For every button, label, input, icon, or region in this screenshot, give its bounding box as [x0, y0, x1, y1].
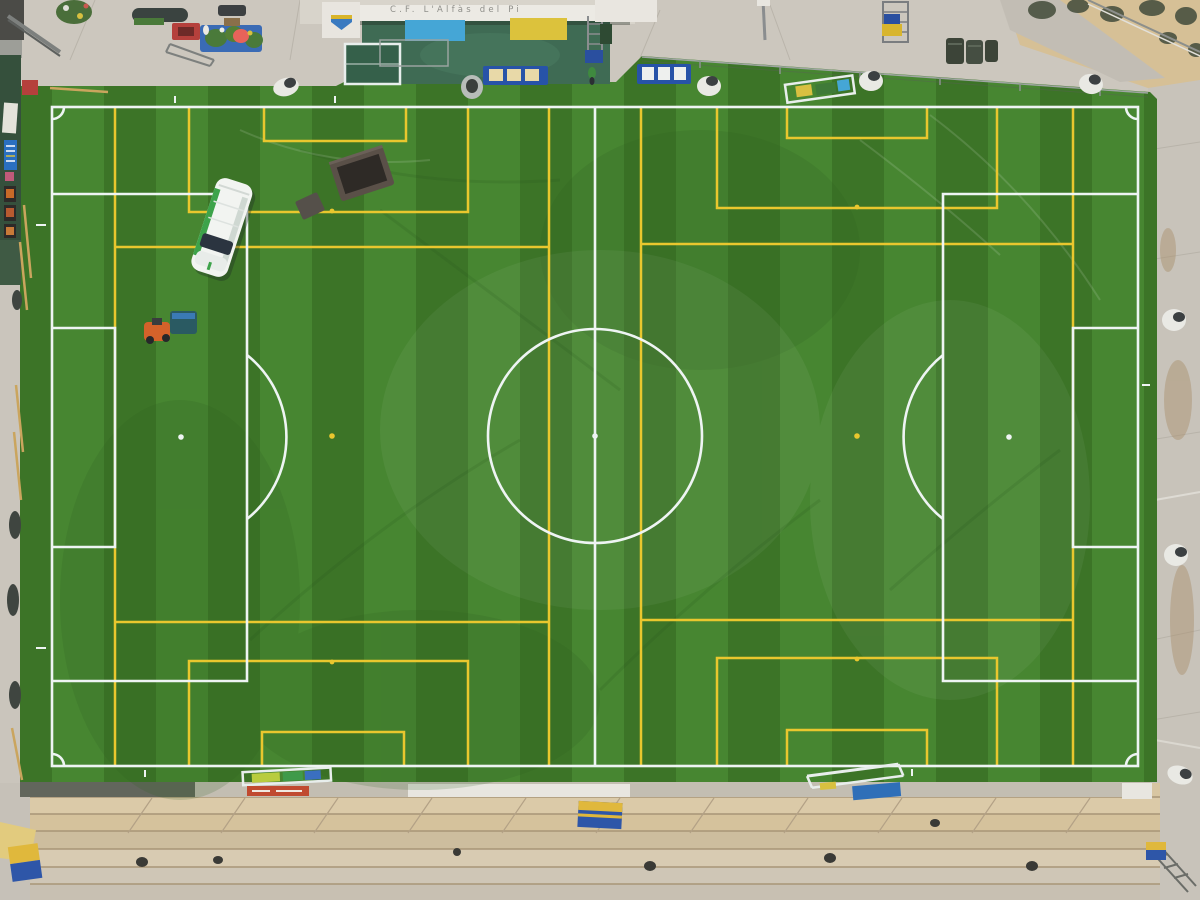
white-sign: [2, 103, 18, 134]
pipes: [218, 5, 246, 16]
red-tarp: [233, 29, 249, 43]
poster-boards: [4, 186, 16, 238]
pink-sign: [5, 172, 14, 181]
blue-wall-panel: [405, 20, 465, 41]
storage-box-left: [8, 843, 43, 882]
trolley-box: [1146, 842, 1166, 860]
terrace-steps: [0, 783, 1196, 900]
red-crates: [22, 80, 38, 95]
floodlight: [859, 71, 883, 91]
blue-sign: [4, 140, 17, 170]
bench-left: [483, 66, 548, 85]
storage-box-centre: [577, 801, 622, 829]
wheelie-bins: [946, 38, 998, 64]
scene-canvas: [0, 0, 1200, 900]
bench-right: [637, 64, 691, 84]
aerial-photo-football-pitch: C.F. L'Alfàs del Pi: [0, 0, 1200, 900]
floodlight: [697, 76, 721, 96]
clubhouse-sign: C.F. L'Alfàs del Pi: [390, 5, 570, 19]
red-machine: [172, 23, 200, 40]
green-door: [600, 24, 612, 44]
turf-field: [20, 56, 1157, 800]
yellow-wall-panel: [510, 18, 567, 40]
litter-bin: [461, 75, 483, 99]
worker: [203, 25, 209, 35]
sponsor-banner: [247, 786, 309, 796]
plant-cart: [56, 0, 92, 24]
floodlight: [1164, 544, 1188, 566]
floodlight: [1162, 309, 1186, 331]
